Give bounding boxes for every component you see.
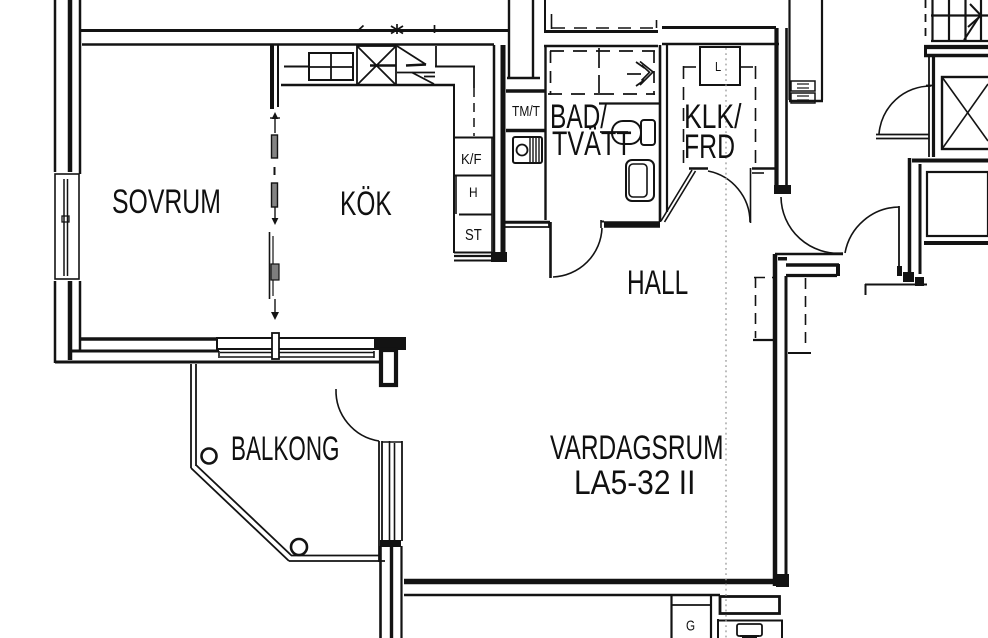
svg-text:K/F: K/F (461, 150, 482, 167)
svg-text:KÖK: KÖK (340, 185, 392, 223)
svg-text:LA5-32 II: LA5-32 II (574, 463, 695, 501)
svg-text:TVÄTT: TVÄTT (552, 125, 632, 163)
svg-text:SOVRUM: SOVRUM (112, 183, 221, 221)
svg-text:H: H (469, 184, 478, 200)
svg-text:FRD: FRD (684, 128, 735, 166)
svg-text:BALKONG: BALKONG (231, 430, 339, 468)
svg-text:HALL: HALL (627, 264, 688, 302)
svg-text:VARDAGSRUM: VARDAGSRUM (550, 429, 724, 467)
svg-text:L: L (715, 59, 721, 74)
svg-text:TM/T: TM/T (512, 103, 540, 120)
svg-text:G: G (686, 617, 695, 634)
svg-text:ST: ST (465, 227, 482, 244)
